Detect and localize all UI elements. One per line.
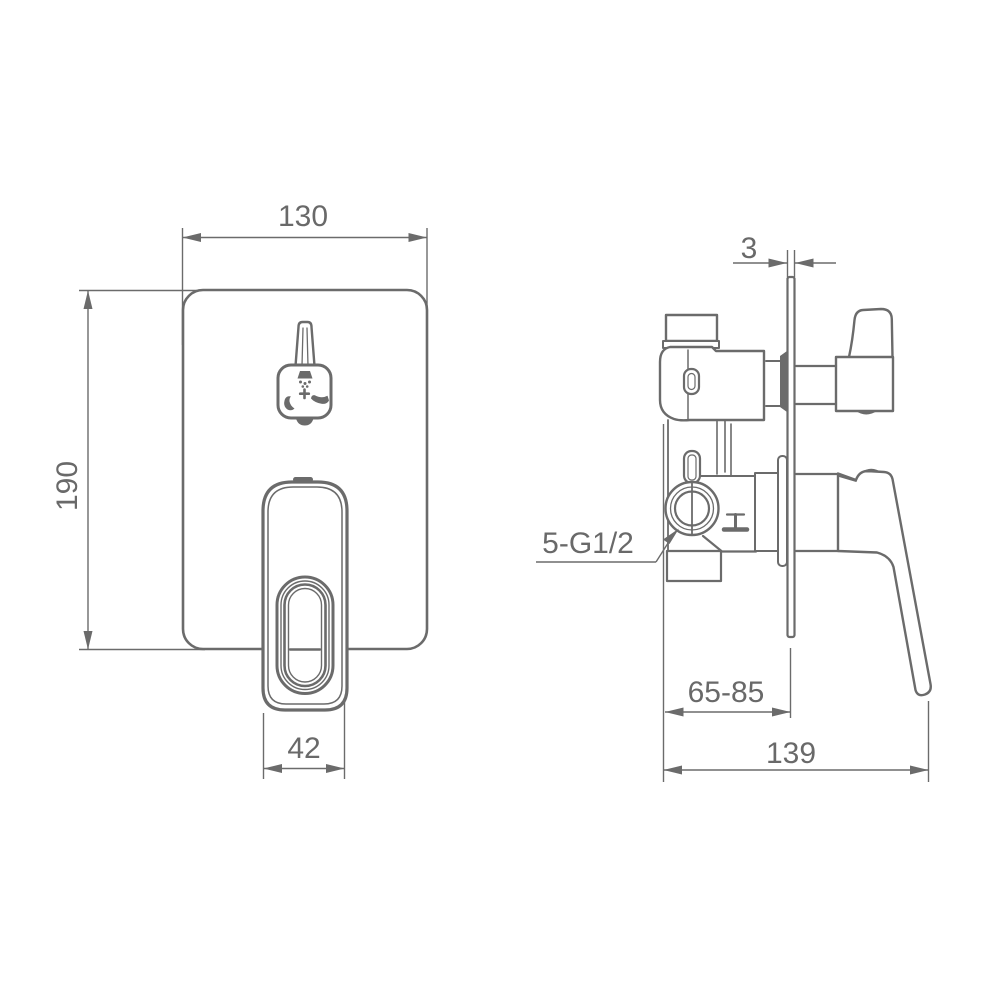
knob-paddle	[849, 309, 893, 357]
wall-plate-edge	[788, 277, 795, 637]
dim-height-arrow-bottom	[84, 631, 93, 650]
dim-handle-arrow-right	[326, 764, 345, 773]
cartridge-stem	[755, 473, 779, 551]
front-view: 130 190	[51, 200, 427, 779]
pipe-union-symbol	[724, 515, 747, 530]
lever-handle-front	[263, 477, 347, 710]
lower-bottom-port	[667, 551, 721, 581]
thread-callout: 5-G1/2	[536, 527, 679, 562]
dim-handle-arrow-left	[264, 764, 283, 773]
shower-spray-dot	[299, 381, 302, 384]
body-connector-line-right	[725, 420, 731, 476]
diverter-knob-side	[796, 309, 893, 415]
diverter-neck	[296, 322, 315, 366]
lever-outline	[838, 471, 931, 695]
wall-plate-side	[788, 250, 795, 637]
technical-drawing-page: 130 190	[0, 0, 1000, 1000]
knob-body	[836, 357, 893, 411]
dim-height-arrow-top	[84, 291, 93, 310]
dim-thickness-label: 3	[741, 232, 758, 265]
dim-width-label: 130	[278, 200, 328, 233]
thread-callout-arrowhead	[663, 529, 679, 545]
dim-width-arrow-right	[409, 233, 428, 242]
dim-handle-label: 42	[287, 732, 320, 765]
cartridge-flange-disc	[778, 456, 787, 566]
dim-handle-width: 42	[264, 701, 345, 779]
shower-spray-dot	[306, 385, 309, 388]
dim-thickness-arrow-left	[769, 259, 788, 268]
knob-bottom-bump	[856, 411, 877, 415]
mounting-slot	[684, 369, 699, 394]
shower-spray-dot	[304, 382, 307, 385]
dim-depth-range: 65-85	[665, 648, 791, 718]
dim-total-depth-arrow-left	[664, 766, 683, 775]
lower-valve-body	[666, 451, 788, 581]
dim-total-depth-label: 139	[766, 737, 816, 770]
shower-spray-dot	[302, 385, 305, 388]
dim-thickness: 3	[733, 232, 836, 268]
lower-inlet-port	[684, 451, 700, 483]
dim-depth-range-label: 65-85	[688, 676, 765, 709]
shower-head-icon-head	[298, 371, 313, 379]
dim-thickness-arrow-right	[795, 259, 814, 268]
upper-top-port	[666, 315, 717, 341]
lower-body-bottom-edge	[703, 536, 756, 552]
upper-stem-gasket	[780, 351, 787, 412]
dim-depth-range-arrow-left	[665, 708, 684, 717]
lever-handle-side	[796, 469, 931, 695]
dim-height-label: 190	[51, 461, 84, 511]
shower-mixer-dimension-drawing: 130 190	[0, 0, 1000, 1000]
dim-total-depth: 139	[664, 701, 929, 782]
upper-body-outline	[660, 347, 764, 420]
dim-width-arrow-left	[183, 233, 202, 242]
dim-total-depth-arrow-right	[910, 766, 929, 775]
dim-width: 130	[183, 200, 428, 242]
shower-spray-dot	[308, 381, 311, 384]
thread-callout-label: 5-G1/2	[542, 527, 634, 560]
dim-height: 190	[51, 291, 93, 650]
side-view: 3 5-G1/2	[536, 232, 931, 782]
dim-depth-range-arrow-right	[772, 708, 791, 717]
